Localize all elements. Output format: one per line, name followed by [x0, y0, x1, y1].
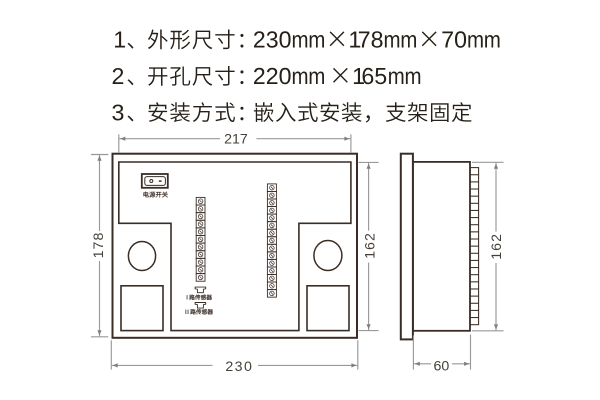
svg-text:162: 162 — [489, 234, 505, 260]
svg-text:162: 162 — [363, 233, 379, 259]
svg-text:60: 60 — [434, 358, 450, 374]
svg-text:217: 217 — [224, 132, 248, 148]
svg-text:178: 178 — [91, 232, 107, 258]
svg-text:1: 1 — [113, 27, 126, 53]
svg-text:230: 230 — [225, 359, 252, 375]
svg-text:3: 3 — [112, 99, 125, 125]
svg-text:2: 2 — [112, 63, 125, 89]
